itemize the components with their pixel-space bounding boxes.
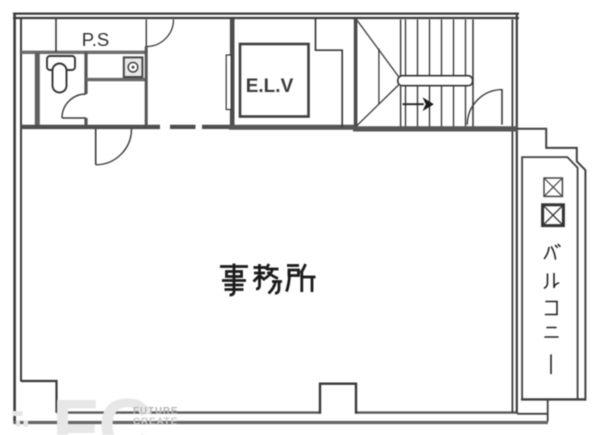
svg-text:FUTURE: FUTURE (133, 406, 178, 417)
svg-text:CREATE: CREATE (133, 417, 178, 428)
svg-text:E.L.V: E.L.V (246, 76, 294, 97)
svg-text:P.S: P.S (82, 29, 109, 50)
